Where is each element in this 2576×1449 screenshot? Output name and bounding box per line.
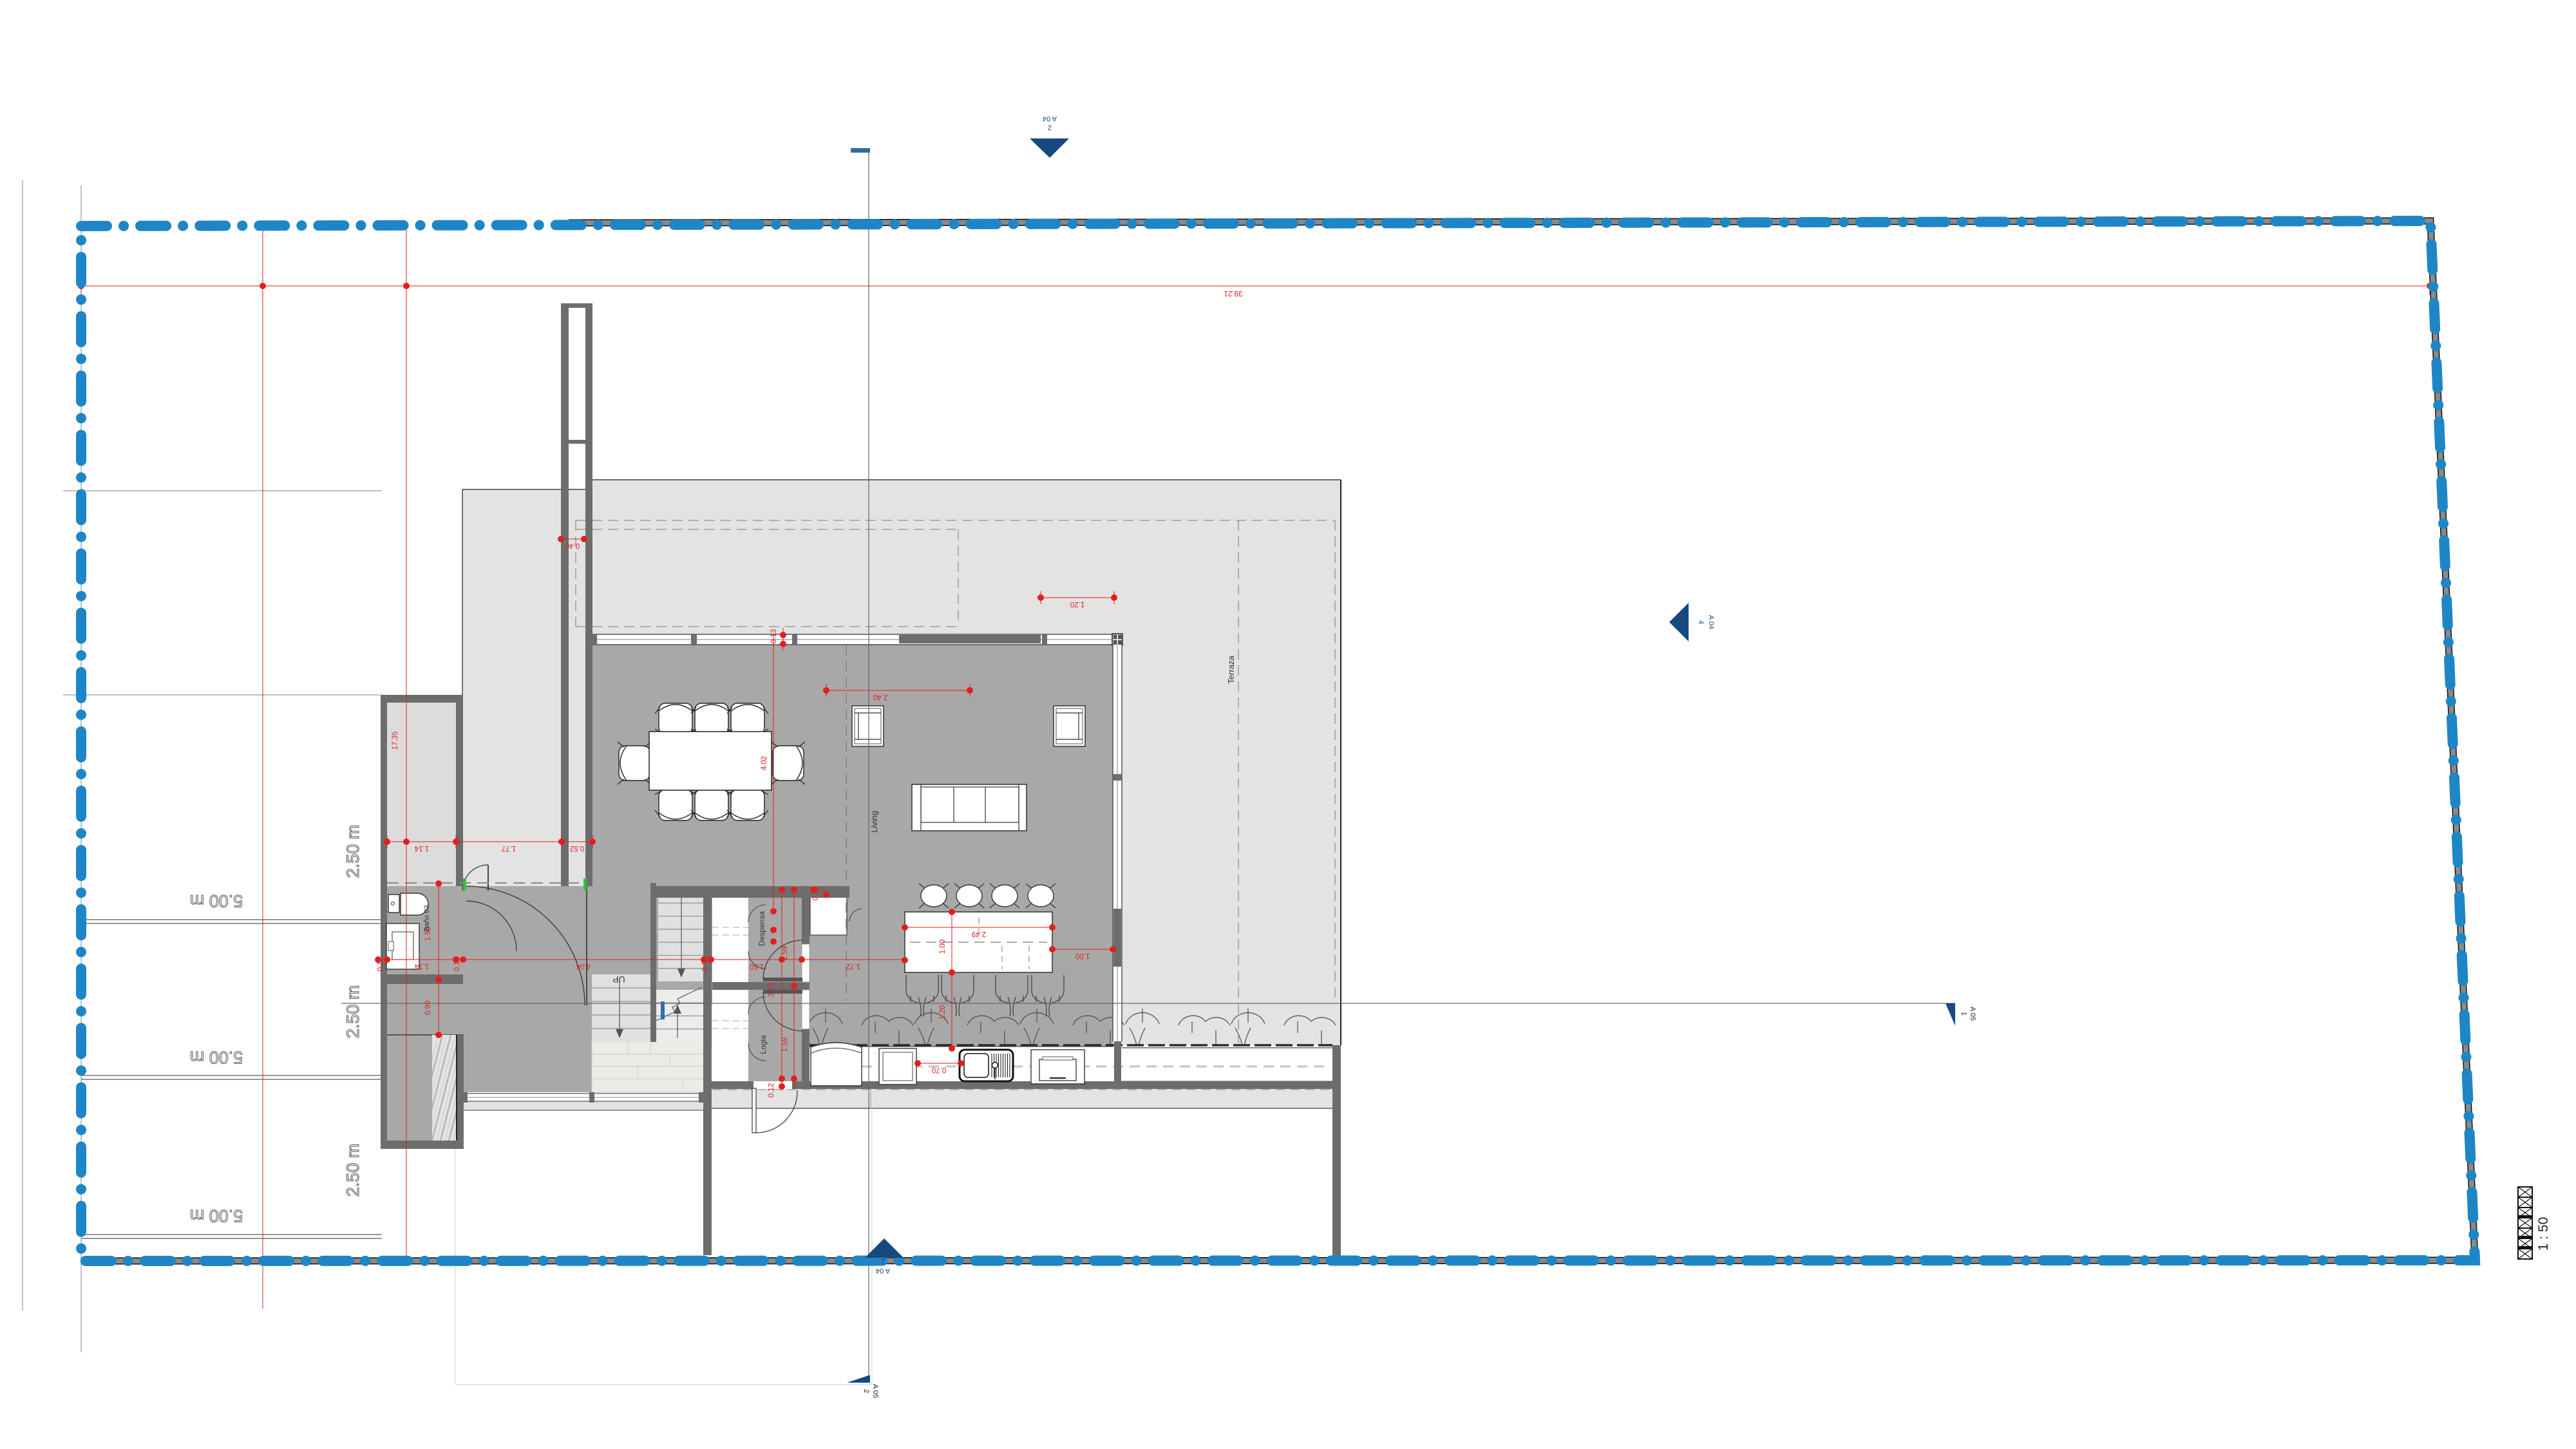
svg-text:A 04: A 04 [1043,115,1057,122]
svg-text:1: 1 [1960,1012,1967,1016]
svg-text:Living: Living [869,811,879,833]
svg-text:0.13: 0.13 [770,629,778,643]
svg-text:5.00 m: 5.00 m [190,891,243,911]
svg-text:1.14: 1.14 [414,844,429,852]
svg-text:1.20: 1.20 [939,1005,947,1019]
svg-text:0.90: 0.90 [424,1001,432,1015]
svg-text:5.00 m: 5.00 m [190,1206,243,1226]
svg-text:0.12: 0.12 [768,1083,775,1097]
svg-text:5.00 m: 5.00 m [190,1048,243,1067]
svg-text:4.04: 4.04 [576,962,591,970]
svg-text:39.21: 39.21 [1224,289,1243,297]
svg-text:0.52: 0.52 [570,844,584,852]
svg-text:0.12: 0.12 [812,886,820,900]
svg-text:2.50 m: 2.50 m [343,1144,363,1197]
svg-text:1.00: 1.00 [939,940,947,954]
svg-text:1.00: 1.00 [1075,952,1090,960]
svg-text:A 05: A 05 [871,1384,879,1398]
svg-text:1.59: 1.59 [781,1037,789,1052]
svg-text:0.40: 0.40 [565,542,580,549]
svg-text:2.40: 2.40 [873,693,887,701]
svg-text:1 : 50: 1 : 50 [2536,1217,2551,1251]
svg-text:4.02: 4.02 [761,756,768,770]
svg-text:17.35: 17.35 [392,732,399,750]
svg-text:2.50 m: 2.50 m [343,985,363,1039]
svg-text:1.50: 1.50 [750,962,764,970]
svg-text:1.72: 1.72 [846,962,860,970]
svg-text:1.20: 1.20 [1070,600,1084,608]
svg-text:2: 2 [862,1389,870,1393]
svg-text:A 04: A 04 [1707,615,1715,629]
svg-text:Terraza: Terraza [1226,656,1236,684]
svg-text:1.14: 1.14 [414,962,429,970]
svg-text:Logia: Logia [759,1035,768,1054]
svg-text:2.50 m: 2.50 m [343,825,363,878]
svg-text:0.70: 0.70 [932,1066,946,1074]
svg-text:1.77: 1.77 [502,844,516,852]
svg-text:3.19: 3.19 [768,983,775,997]
svg-text:UP: UP [612,974,625,985]
svg-text:1.59: 1.59 [781,946,789,960]
svg-text:Baño 03: Baño 03 [423,905,431,932]
svg-text:0.12: 0.12 [453,957,461,971]
svg-text:0.12: 0.12 [701,957,709,971]
svg-text:0.12: 0.12 [377,957,384,971]
svg-text:A 04: A 04 [876,1267,890,1274]
svg-text:2.49: 2.49 [972,930,986,938]
svg-text:2: 2 [1048,124,1052,131]
svg-text:A 05: A 05 [1969,1007,1976,1021]
svg-text:4: 4 [1697,620,1705,624]
svg-text:Despensa: Despensa [757,911,766,946]
svg-text:1: 1 [881,1257,885,1265]
